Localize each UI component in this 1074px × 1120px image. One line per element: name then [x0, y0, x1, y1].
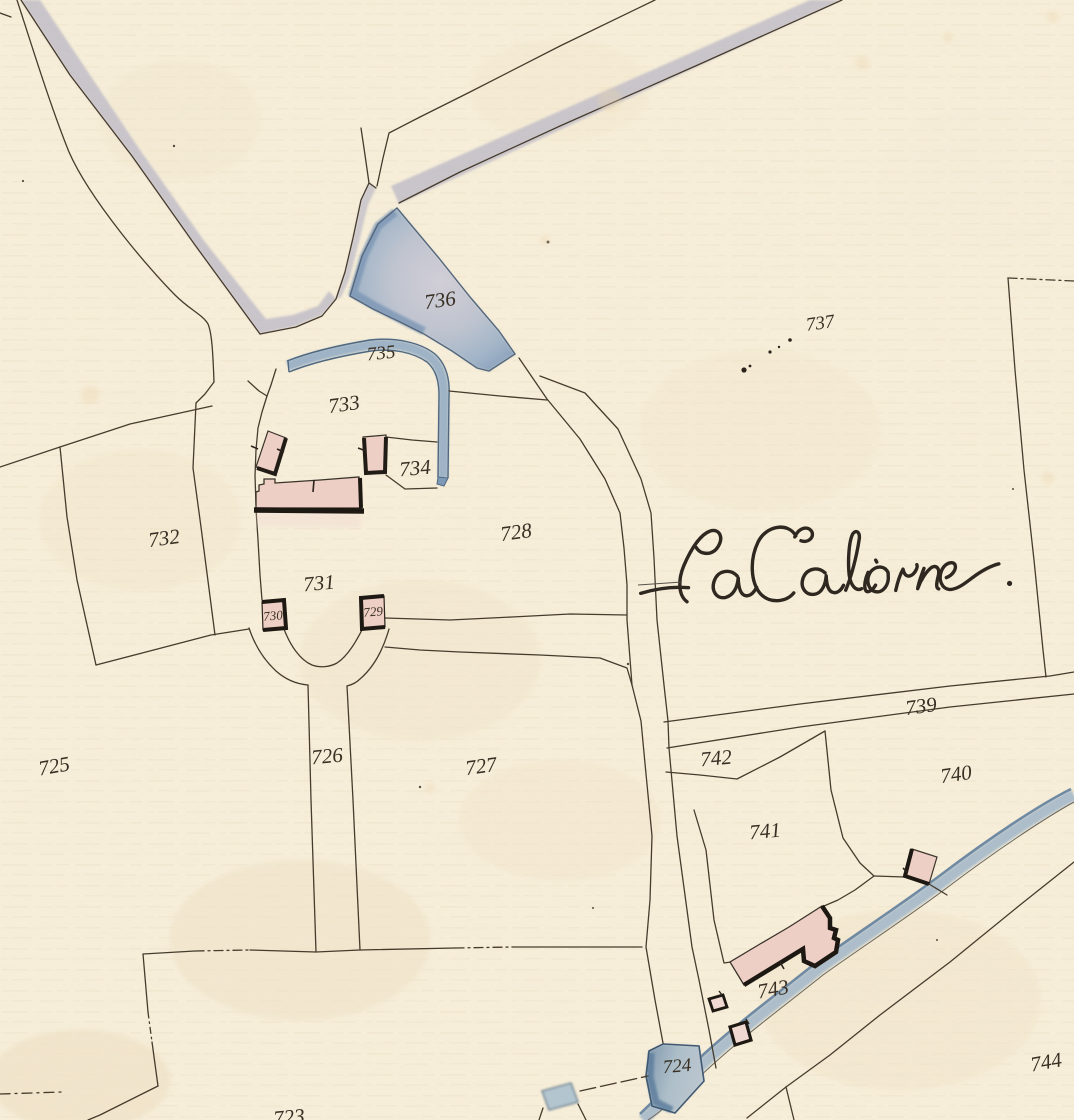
- svg-text:731: 731: [302, 570, 335, 597]
- svg-text:735: 735: [366, 342, 397, 366]
- svg-text:723: 723: [272, 1104, 305, 1120]
- svg-text:741: 741: [748, 818, 781, 845]
- svg-text:730: 730: [263, 607, 284, 624]
- svg-text:733: 733: [327, 390, 362, 418]
- svg-text:726: 726: [310, 743, 344, 770]
- svg-text:728: 728: [499, 518, 534, 546]
- svg-text:742: 742: [699, 745, 733, 772]
- svg-text:739: 739: [904, 692, 939, 720]
- svg-text:724: 724: [662, 1055, 693, 1078]
- svg-text:729: 729: [363, 603, 384, 620]
- svg-text:727: 727: [464, 752, 500, 780]
- svg-text:736: 736: [423, 286, 458, 314]
- svg-text:740: 740: [939, 760, 974, 788]
- svg-text:734: 734: [398, 455, 432, 482]
- svg-text:737: 737: [805, 311, 838, 336]
- svg-text:732: 732: [147, 524, 182, 552]
